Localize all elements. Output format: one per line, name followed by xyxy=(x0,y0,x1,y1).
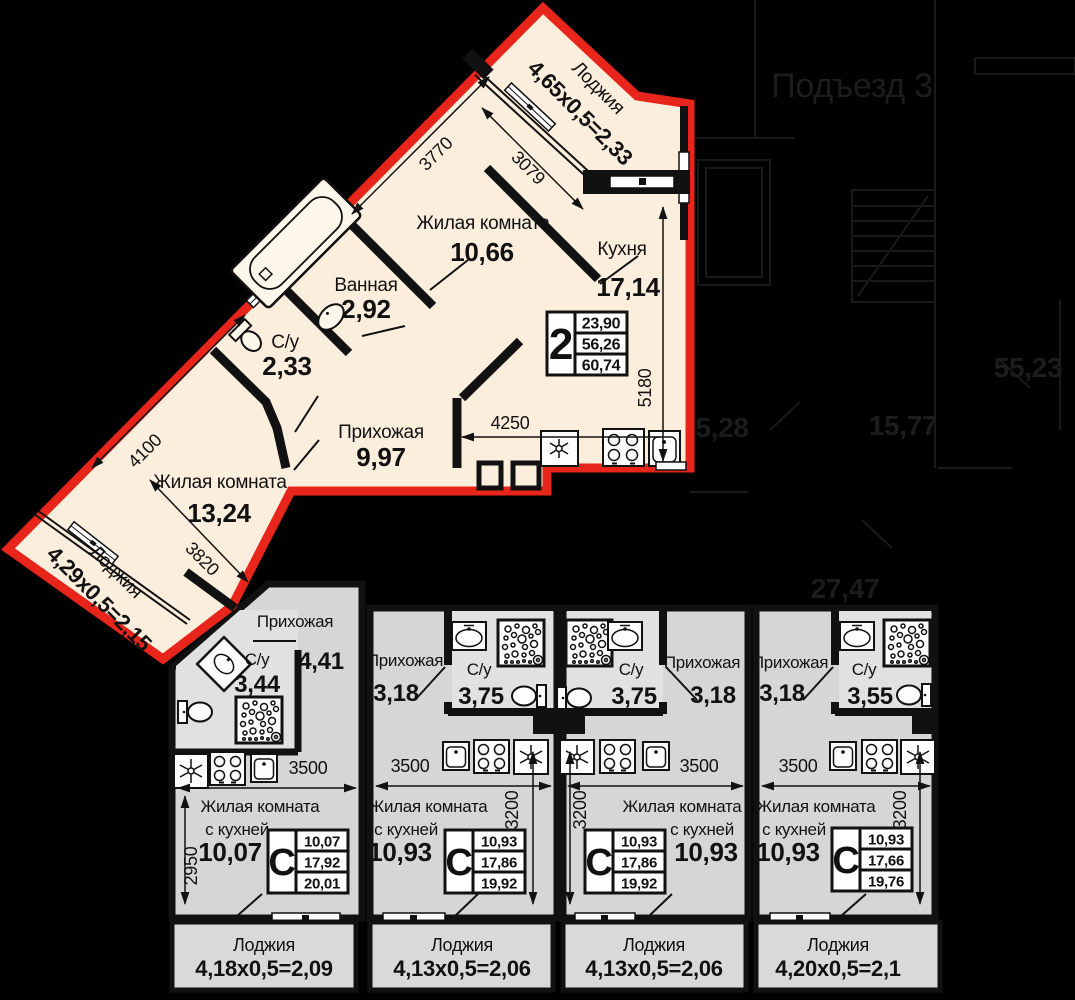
studio-3-toilet xyxy=(557,687,591,709)
hall-label: Прихожая xyxy=(338,422,424,443)
studio-3-dim-depth: 3200 xyxy=(570,790,590,829)
faint-area-2: 5,28 xyxy=(695,412,748,443)
studio-2-wc-area: 3,75 xyxy=(458,683,504,710)
svg-text:Лоджия: Лоджия xyxy=(431,935,493,955)
hall-area: 9,97 xyxy=(356,442,405,472)
studio-4-sink xyxy=(840,622,874,650)
studio-2-hall-label: Прихожая xyxy=(367,651,443,670)
studio-2-stove xyxy=(474,740,509,773)
studio-2-info-table: С 10,93 17,86 19,92 xyxy=(445,830,525,893)
studio-1-shower xyxy=(236,697,282,743)
svg-text:С: С xyxy=(445,842,472,884)
living2-area: 13,24 xyxy=(187,498,251,528)
kitchen-bottom-window xyxy=(656,462,686,470)
svg-text:4,13х0,5=2,06: 4,13х0,5=2,06 xyxy=(585,956,722,981)
studio-4-wc-label: С/у xyxy=(852,660,877,679)
svg-text:Лоджия: Лоджия xyxy=(623,935,685,955)
faint-area-3: 15,77 xyxy=(869,410,938,441)
studio-4-vent xyxy=(901,740,935,774)
svg-text:С: С xyxy=(832,840,859,882)
studio-3-hall-label: Прихожая xyxy=(664,653,740,672)
studio-3-kitchen-sink xyxy=(643,742,669,770)
svg-text:10,93: 10,93 xyxy=(868,832,904,849)
studio-4-kitchen-sink xyxy=(830,742,856,770)
studio-3-living-label1: Жилая комната xyxy=(623,797,743,816)
studio-3: Прихожая 3,18 С/у 3,75 Жилая комната с к… xyxy=(557,608,748,990)
floorplan-page: Подъезд 3 55,23 5,28 15,77 27,47 Прихожа… xyxy=(0,0,1075,1000)
studio-3-shower xyxy=(566,620,612,666)
studio-1-wc-label: С/у xyxy=(245,650,270,669)
studio-1-toilet xyxy=(178,701,212,723)
stove xyxy=(603,429,644,466)
svg-text:4,18х0,5=2,09: 4,18х0,5=2,09 xyxy=(195,956,332,981)
studio-4-shower xyxy=(884,620,930,666)
svg-text:17,86: 17,86 xyxy=(481,855,517,872)
kitchen-label: Кухня xyxy=(597,239,646,260)
vent-shaft-1 xyxy=(479,463,501,488)
faint-area-4: 27,47 xyxy=(811,573,880,604)
svg-text:17,66: 17,66 xyxy=(868,853,904,870)
svg-text:С: С xyxy=(268,842,295,884)
svg-text:10,93: 10,93 xyxy=(481,834,517,851)
studio-3-living-area: 10,93 xyxy=(674,837,738,867)
studio-4-hall-label: Прихожая xyxy=(752,653,828,672)
svg-text:С: С xyxy=(585,842,612,884)
wc-label: С/у xyxy=(271,332,299,353)
studio-4-hall-area: 3,18 xyxy=(759,680,805,707)
studio-2-living-area: 10,93 xyxy=(368,837,432,867)
living1-area: 10,66 xyxy=(450,237,514,267)
svg-text:10,07: 10,07 xyxy=(304,834,340,851)
studio-2-toilet xyxy=(512,685,546,707)
studio-4-dim-width: 3500 xyxy=(779,756,818,776)
studio-1-hall-label: Прихожая xyxy=(257,612,333,631)
wc-area: 2,33 xyxy=(262,351,311,381)
studio-1-hall-area: 4,41 xyxy=(298,648,344,675)
studio-4: Прихожая 3,18 С/у 3,55 Жилая комната с к… xyxy=(752,608,940,990)
studio-4-info-table: С 10,93 17,66 19,76 xyxy=(832,828,912,891)
bath-label: Ванная xyxy=(334,275,397,296)
svg-text:Лоджия: Лоджия xyxy=(807,935,869,955)
svg-text:4,20х0,5=2,1: 4,20х0,5=2,1 xyxy=(775,956,901,981)
svg-text:19,92: 19,92 xyxy=(481,876,517,893)
studio-3-sink xyxy=(608,622,642,650)
studio-1-kitchen-sink xyxy=(251,754,277,782)
faint-area-1: 55,23 xyxy=(994,352,1063,383)
studio-4-loggia: Лоджия 4,20х0,5=2,1 xyxy=(756,922,940,990)
svg-text:17,92: 17,92 xyxy=(304,855,340,872)
studio-2-shower xyxy=(498,620,544,666)
studio-4-toilet xyxy=(897,684,931,706)
dim-4250: 4250 xyxy=(491,413,530,433)
studio-2: Прихожая 3,18 С/у 3,75 Жилая комната с к… xyxy=(367,608,557,990)
studio-4-dim-depth: 3200 xyxy=(890,790,910,829)
studio-3-stove xyxy=(600,740,635,773)
svg-text:20,01: 20,01 xyxy=(304,876,340,893)
living1-label: Жилая комната xyxy=(416,213,550,234)
studio-3-wc-label: С/у xyxy=(619,660,644,679)
studio-3-info-table: С 10,93 17,86 19,92 xyxy=(585,830,665,893)
studio-1-dim-width: 3500 xyxy=(289,758,328,778)
apartment-living-total: 23,90 xyxy=(582,316,621,333)
apartment-info-table: 2 23,90 56,26 60,74 xyxy=(547,312,627,375)
kitchen-area: 17,14 xyxy=(596,272,660,302)
studio-2-dim-width: 3500 xyxy=(391,756,430,776)
studio-1-dim-depth: 2950 xyxy=(181,846,201,885)
studio-1-wc-area: 3,44 xyxy=(234,671,280,698)
studio-1: Прихожая 4,41 С/у 3,44 Жилая комната с к… xyxy=(172,584,362,990)
svg-text:17,86: 17,86 xyxy=(621,855,657,872)
studio-2-loggia: Лоджия 4,13х0,5=2,06 xyxy=(370,922,553,990)
studio-2-living-label1: Жилая комната xyxy=(369,797,489,816)
living2-label: Жилая комната xyxy=(153,472,287,493)
studio-2-vent xyxy=(514,740,548,774)
studio-1-vent xyxy=(174,754,208,788)
studio-1-living-label1: Жилая комната xyxy=(201,797,321,816)
studio-2-kitchen-sink xyxy=(443,742,469,770)
apartment-total-area: 60,74 xyxy=(582,358,621,375)
vent-shaft-2 xyxy=(513,463,539,488)
studio-3-vent xyxy=(560,740,594,774)
studio-4-stove xyxy=(862,740,897,773)
studio-3-wc-area: 3,75 xyxy=(611,683,657,710)
studio-2-wc-label: С/у xyxy=(467,660,492,679)
svg-text:4,13х0,5=2,06: 4,13х0,5=2,06 xyxy=(393,956,530,981)
svg-text:10,93: 10,93 xyxy=(621,834,657,851)
studio-3-loggia: Лоджия 4,13х0,5=2,06 xyxy=(563,922,746,990)
studio-1-loggia: Лоджия 4,18х0,5=2,09 xyxy=(172,922,356,990)
svg-text:19,76: 19,76 xyxy=(868,874,904,891)
bath-area: 2,92 xyxy=(341,294,390,324)
svg-text:19,92: 19,92 xyxy=(621,876,657,893)
studio-2-dim-depth: 3200 xyxy=(502,790,522,829)
studio-1-living-area: 10,07 xyxy=(198,837,262,867)
studio-4-living-label1: Жилая комната xyxy=(757,797,877,816)
dim-5180: 5180 xyxy=(635,368,655,407)
studio-1-info-table: С 10,07 17,92 20,01 xyxy=(268,830,348,893)
svg-text:Лоджия: Лоджия xyxy=(233,935,295,955)
apartment-rooms-badge: 2 xyxy=(549,320,573,369)
studio-2-sink xyxy=(452,622,486,650)
apartment-area: 56,26 xyxy=(582,337,621,354)
studio-3-dim-width: 3500 xyxy=(680,756,719,776)
studio-3-hall-area: 3,18 xyxy=(690,682,736,709)
studio-4-wc-area: 3,55 xyxy=(847,683,893,710)
studio-1-stove xyxy=(210,752,245,785)
studio-4-living-area: 10,93 xyxy=(756,837,820,867)
entrance-label: Подъезд 3 xyxy=(771,67,932,105)
studio-2-hall-area: 3,18 xyxy=(373,680,419,707)
floorplan-svg: Подъезд 3 55,23 5,28 15,77 27,47 Прихожа… xyxy=(0,0,1075,1000)
